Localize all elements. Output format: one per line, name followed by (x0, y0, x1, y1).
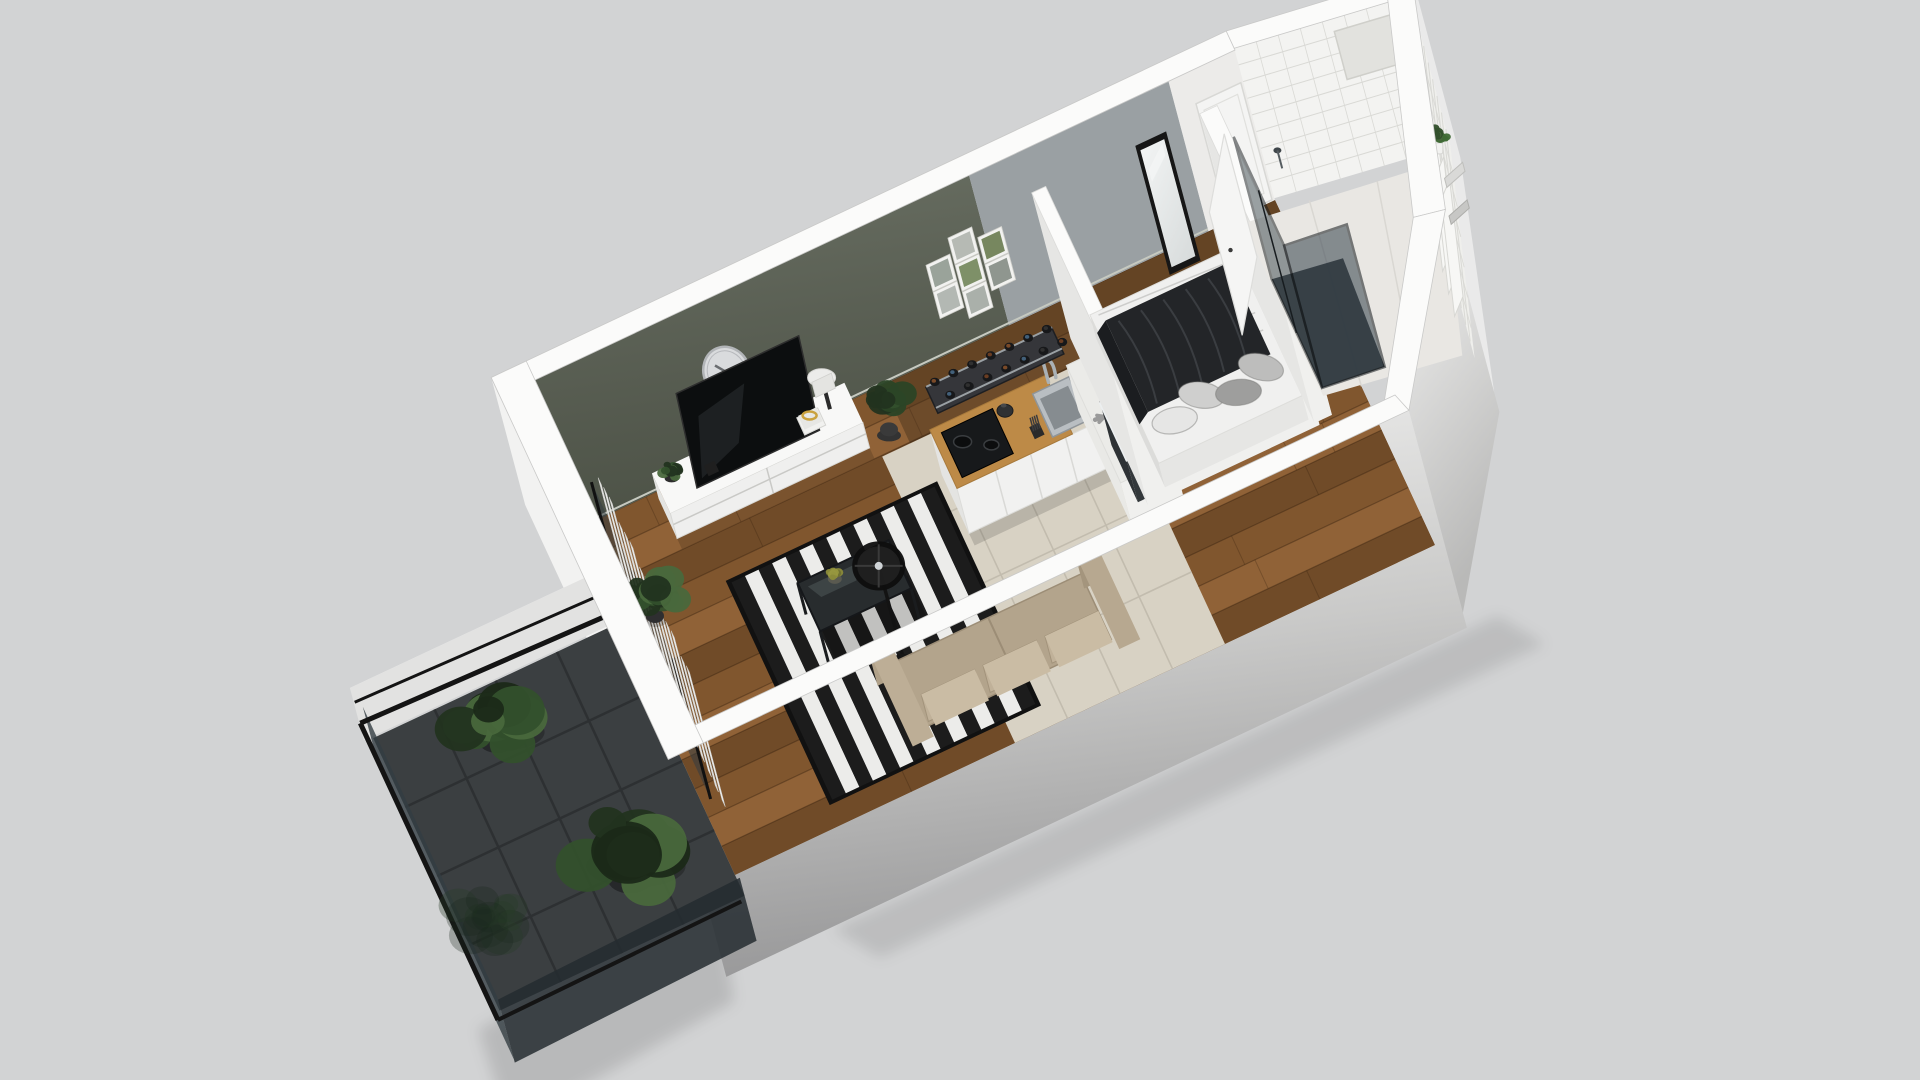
floorplan-render (0, 0, 1920, 1080)
apartment-3d-scene (0, 0, 1920, 1080)
